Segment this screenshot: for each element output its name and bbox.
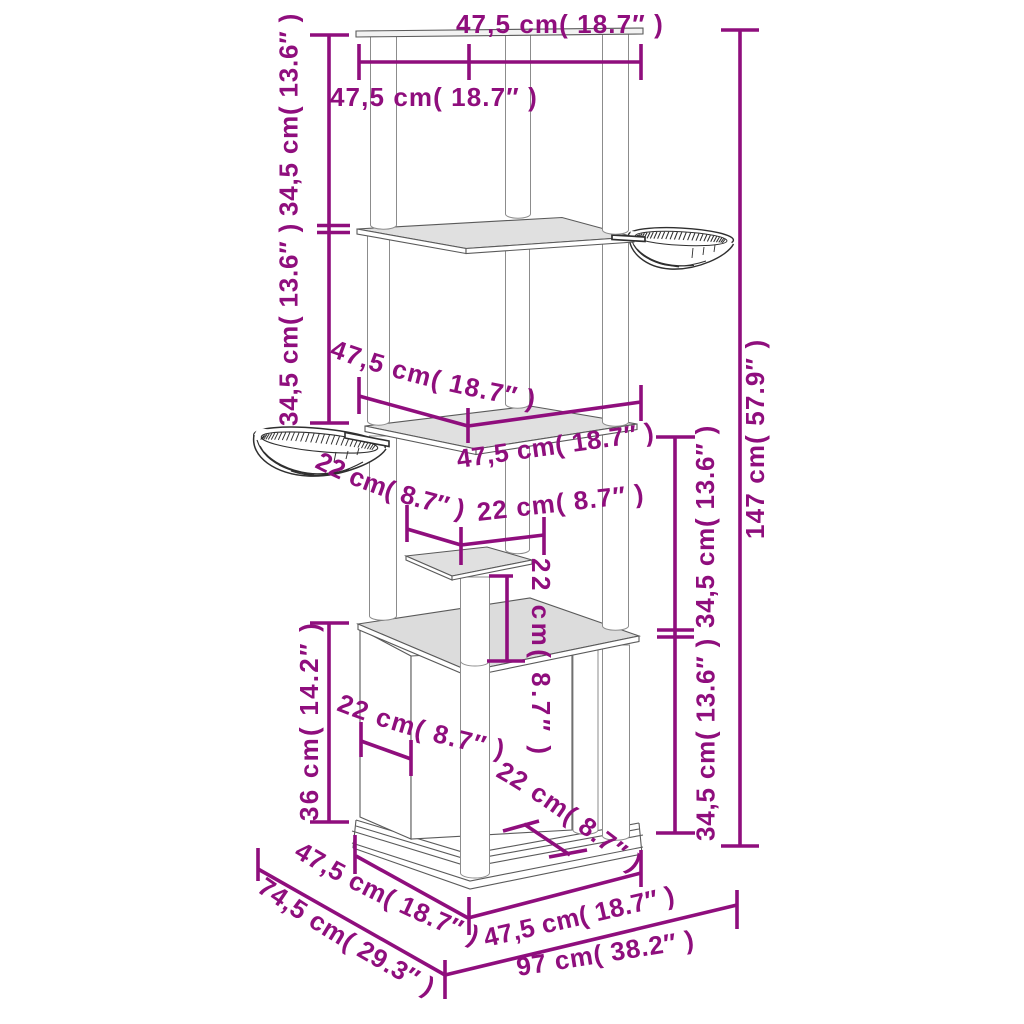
svg-text:22 cm( 8.7″ ): 22 cm( 8.7″ ): [526, 558, 556, 758]
svg-text:34,5 cm( 13.6″ ): 34,5 cm( 13.6″ ): [690, 425, 720, 628]
svg-text:34,5 cm( 13.6″ ): 34,5 cm( 13.6″ ): [691, 638, 721, 841]
svg-text:147 cm( 57.9″ ): 147 cm( 57.9″ ): [740, 339, 770, 539]
svg-text:47,5 cm( 18.7″ ): 47,5 cm( 18.7″ ): [456, 9, 664, 39]
svg-text:34,5 cm( 13.6″ ): 34,5 cm( 13.6″ ): [274, 13, 304, 216]
svg-text:34,5 cm( 13.6″ ): 34,5 cm( 13.6″ ): [274, 223, 304, 426]
svg-text:36 cm( 14.2″ ): 36 cm( 14.2″ ): [294, 621, 324, 821]
svg-text:47,5 cm( 18.7″ ): 47,5 cm( 18.7″ ): [330, 82, 538, 112]
